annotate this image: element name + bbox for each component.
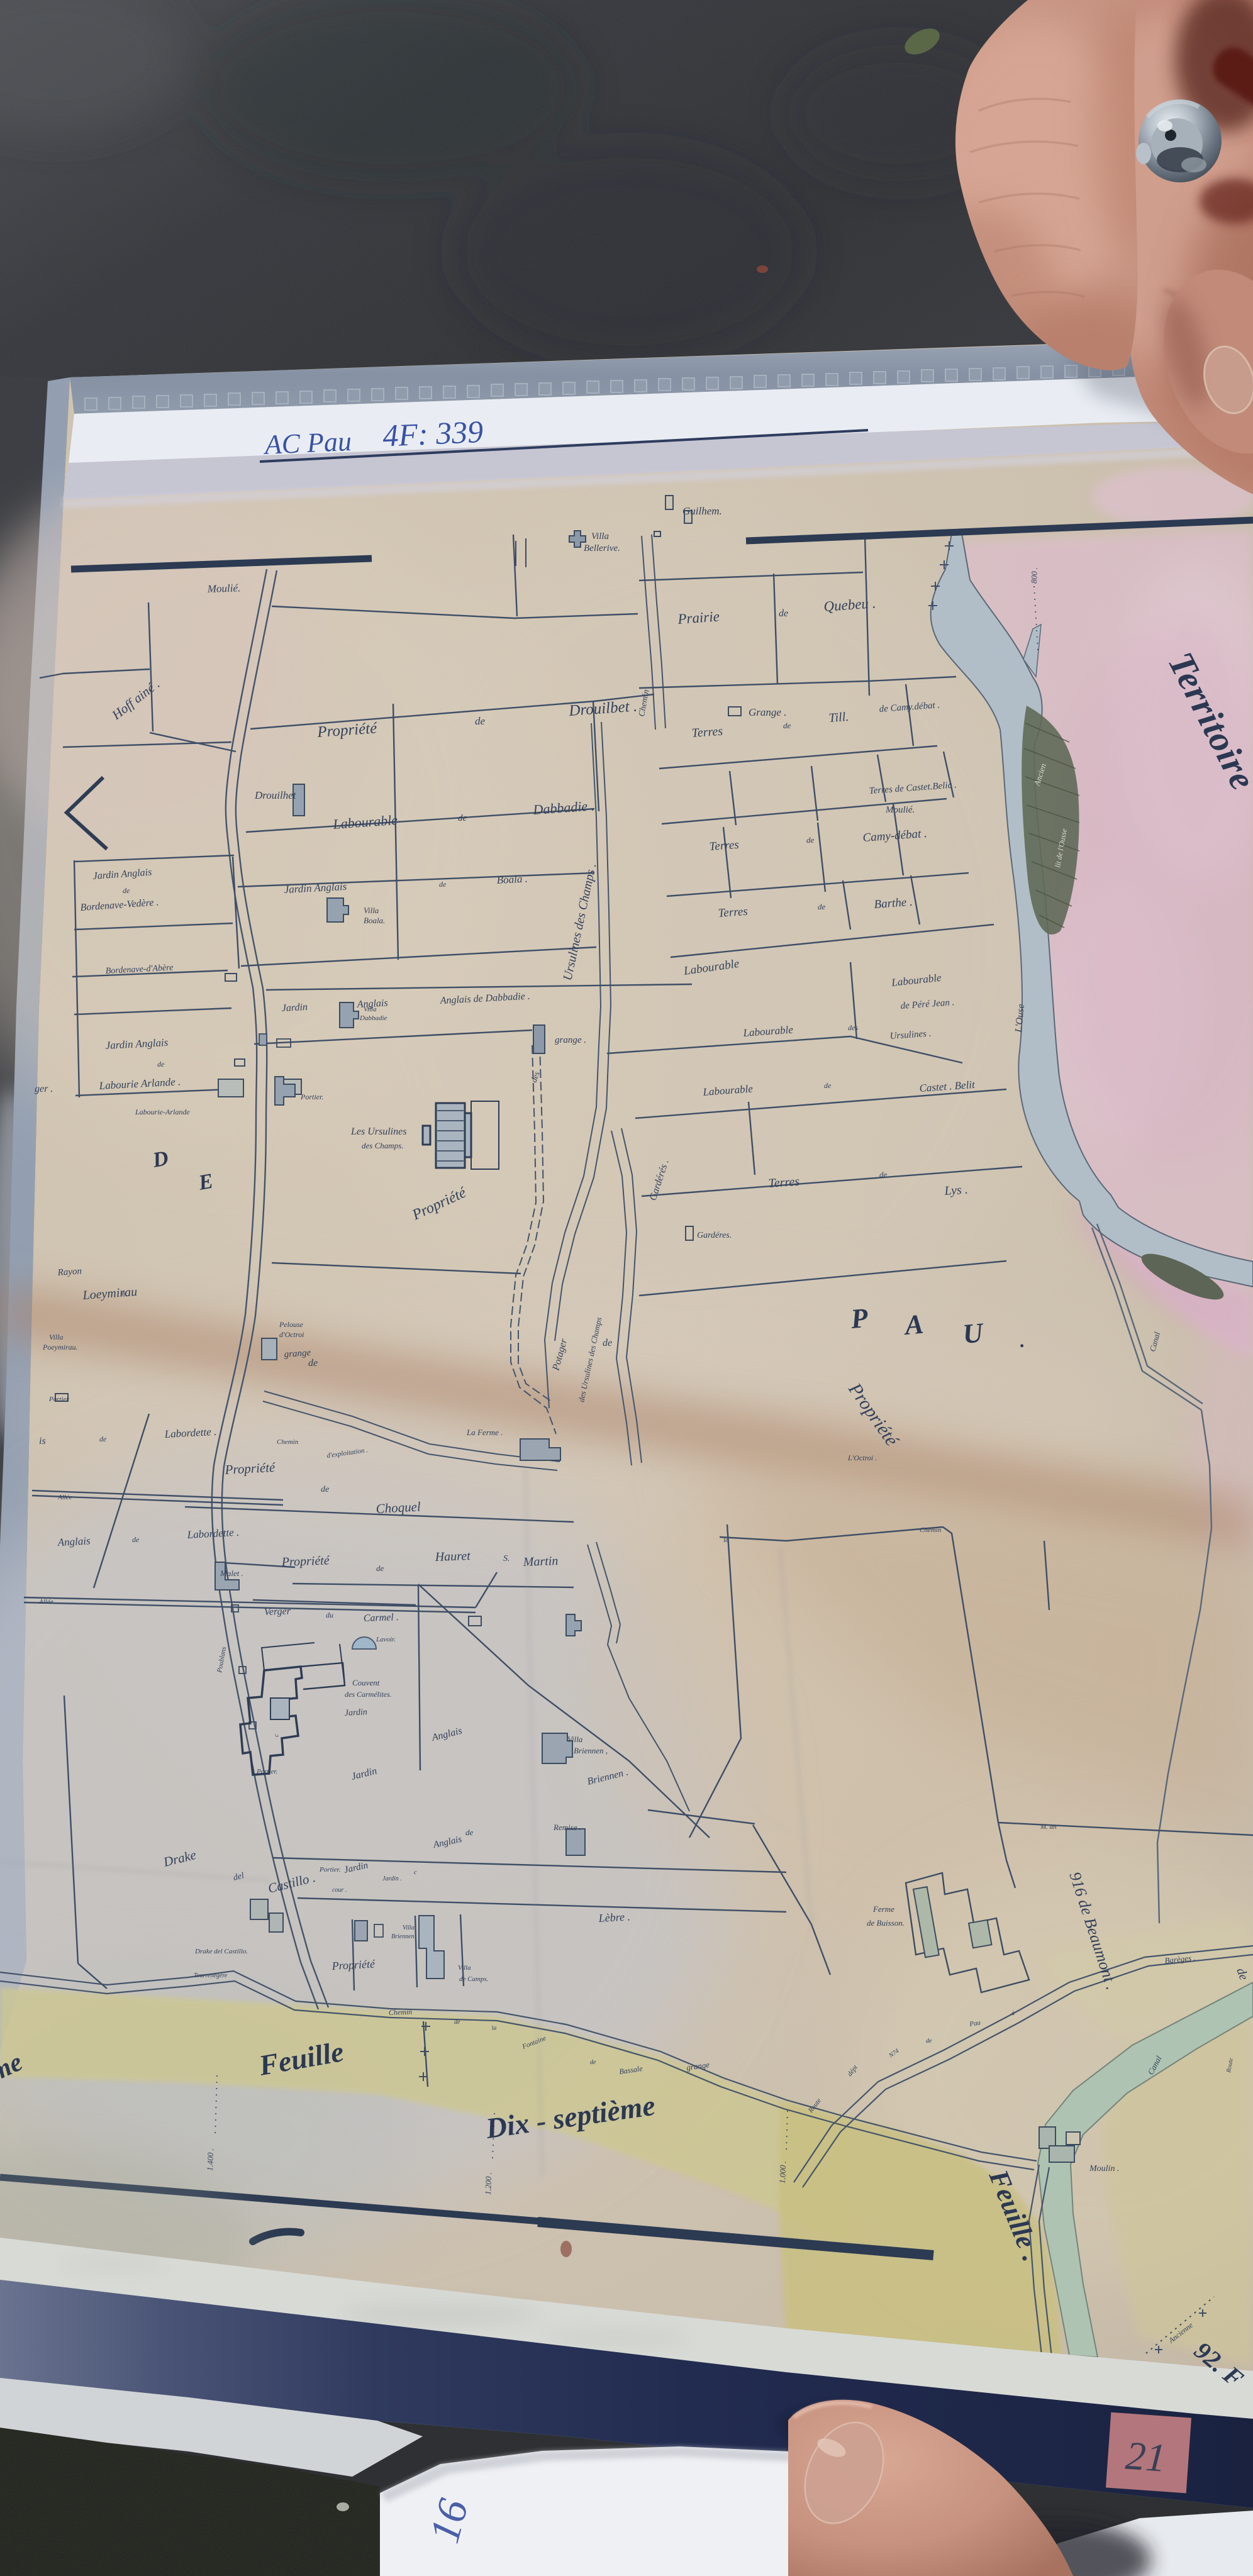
svg-text:de: de	[321, 1485, 329, 1494]
svg-text:Drouilhet: Drouilhet	[254, 789, 297, 801]
svg-text:Chemin: Chemin	[277, 1438, 299, 1446]
svg-text:de: de	[590, 2059, 596, 2066]
svg-text:des Carmélites.: des Carmélites.	[345, 1690, 392, 1699]
svg-text:Verger: Verger	[264, 1606, 291, 1618]
svg-text:Carmel .: Carmel .	[364, 1612, 399, 1624]
svg-text:Villa: Villa	[567, 1735, 583, 1744]
svg-text:de: de	[603, 1338, 612, 1348]
svg-text:Villa: Villa	[364, 1006, 377, 1013]
svg-text:de: de	[806, 835, 815, 845]
svg-text:Villa: Villa	[403, 1924, 415, 1931]
svg-text:Moulin .: Moulin .	[1089, 2164, 1119, 2173]
svg-text:La Ferme .: La Ferme .	[466, 1428, 503, 1437]
svg-text:c: c	[352, 1963, 356, 1972]
svg-text:de: de	[475, 715, 486, 727]
svg-text:Malet .: Malet .	[220, 1568, 243, 1578]
svg-text:Drake del Castillo.: Drake del Castillo.	[194, 1948, 248, 1955]
svg-text:.: .	[1020, 1331, 1025, 1352]
svg-text:Jardin: Jardin	[281, 1002, 308, 1014]
svg-text:de: de	[454, 2019, 460, 2026]
svg-text:Rayon: Rayon	[57, 1266, 82, 1278]
svg-text:Briennen ,: Briennen ,	[574, 1746, 608, 1755]
svg-text:de: de	[783, 721, 791, 730]
svg-text:de: de	[123, 886, 130, 895]
svg-text:de: de	[465, 1828, 474, 1837]
svg-text:Terres: Terres	[768, 1175, 800, 1191]
svg-text:4F: 339: 4F: 339	[382, 414, 484, 453]
svg-text:Villa: Villa	[364, 906, 379, 915]
svg-text:Chemin: Chemin	[920, 1526, 942, 1534]
svg-text:de Camps.: de Camps.	[459, 1975, 488, 1983]
svg-text:Propriété: Propriété	[281, 1553, 330, 1569]
svg-text:Remise .: Remise .	[553, 1823, 581, 1832]
svg-text:800 .: 800 .	[1029, 567, 1039, 584]
svg-text:Jardin: Jardin	[344, 1707, 367, 1718]
svg-text:Anglais: Anglais	[57, 1535, 91, 1548]
svg-text:Prairie: Prairie	[677, 608, 720, 627]
svg-text:21: 21	[1124, 2433, 1167, 2480]
svg-text:de: de	[132, 1535, 140, 1544]
svg-text:Tourrenégère: Tourrenégère	[194, 1972, 228, 1979]
svg-text:grange: grange	[284, 1348, 311, 1360]
svg-text:Terres: Terres	[718, 905, 749, 920]
svg-text:Portier.: Portier.	[300, 1092, 323, 1101]
svg-text:le: le	[723, 1536, 728, 1544]
svg-text:Boala .: Boala .	[496, 872, 528, 886]
svg-text:1.400 .: 1.400 .	[205, 2148, 215, 2171]
svg-text:Till.: Till.	[828, 710, 849, 725]
svg-text:des: des	[848, 1023, 858, 1032]
svg-text:c: c	[414, 1869, 417, 1876]
svg-text:1.200 .: 1.200 .	[483, 2172, 493, 2195]
svg-text:de: de	[376, 1563, 384, 1573]
svg-text:Les Ursulines: Les Ursulines	[350, 1126, 406, 1137]
svg-text:AC Pau: AC Pau	[262, 426, 352, 460]
svg-text:P: P	[849, 1302, 870, 1335]
svg-text:Bellerive.: Bellerive.	[584, 543, 620, 553]
svg-text:Barthe .: Barthe .	[874, 896, 913, 911]
svg-text:à: à	[1011, 2010, 1015, 2017]
svg-text:L'Octroi .: L'Octroi .	[847, 1453, 877, 1462]
svg-text:Moulié.: Moulié.	[206, 582, 240, 595]
svg-text:S.: S.	[503, 1554, 510, 1563]
svg-text:de: de	[308, 1358, 318, 1368]
svg-text:Portier: Portier	[48, 1396, 69, 1403]
svg-text:grange .: grange .	[555, 1035, 586, 1045]
svg-text:de: de	[458, 813, 467, 823]
svg-text:Guilhem.: Guilhem.	[682, 505, 722, 517]
svg-text:Villa: Villa	[49, 1333, 63, 1341]
svg-text:M. an: M. an	[1040, 1823, 1057, 1831]
svg-text:Lèbre .: Lèbre .	[598, 1910, 630, 1924]
svg-text:Chemin: Chemin	[389, 2007, 413, 2017]
svg-text:Ferme: Ferme	[872, 1904, 894, 1914]
svg-text:Terres: Terres	[709, 838, 740, 853]
svg-text:Choquel: Choquel	[376, 1499, 421, 1516]
svg-text:Villa: Villa	[591, 531, 609, 541]
svg-text:Poeymirau.: Poeymirau.	[42, 1343, 78, 1352]
svg-text:Couvent: Couvent	[352, 1678, 380, 1687]
svg-text:Allée: Allée	[57, 1494, 72, 1501]
svg-text:1.000 .: 1.000 .	[777, 2161, 788, 2184]
svg-text:de Buisson.: de Buisson.	[867, 1918, 905, 1928]
svg-text:de: de	[779, 608, 788, 619]
svg-text:Allée: Allée	[38, 1598, 53, 1606]
svg-text:des Champs.: des Champs.	[362, 1141, 403, 1150]
svg-text:de: de	[439, 880, 447, 889]
svg-text:Portier.: Portier.	[256, 1768, 277, 1775]
svg-text:Portier.: Portier.	[319, 1866, 340, 1874]
svg-text:du: du	[326, 1611, 333, 1619]
svg-text:cour .: cour .	[332, 1887, 347, 1894]
svg-text:Villa: Villa	[458, 1964, 471, 1972]
svg-text:Lavoir.: Lavoir.	[376, 1636, 396, 1643]
svg-text:Jardin .: Jardin .	[382, 1875, 402, 1882]
svg-text:Labourie-Arlande: Labourie-Arlande	[135, 1108, 190, 1116]
svg-text:de: de	[99, 1435, 107, 1443]
svg-text:de: de	[926, 2038, 932, 2045]
svg-text:la: la	[491, 2024, 497, 2032]
svg-text:Moulié.: Moulié.	[885, 805, 915, 815]
svg-text:Hauret: Hauret	[434, 1549, 471, 1564]
svg-text:ger .: ger .	[35, 1084, 53, 1094]
svg-text:Lys .: Lys .	[944, 1182, 969, 1198]
svg-text:Briennen: Briennen	[391, 1933, 415, 1940]
svg-text:Terres: Terres	[691, 724, 723, 740]
svg-text:is: is	[39, 1436, 46, 1446]
svg-text:Boala.: Boala.	[364, 916, 385, 925]
svg-text:Propriété: Propriété	[224, 1460, 277, 1477]
svg-text:de: de	[879, 1170, 888, 1179]
svg-text:de: de	[818, 902, 826, 911]
svg-text:Grange .: Grange .	[749, 706, 786, 718]
svg-text:Dabbadie: Dabbadie	[359, 1014, 387, 1022]
svg-text:Gardéres.: Gardéres.	[697, 1231, 732, 1240]
svg-text:d'Octroi: d'Octroi	[279, 1330, 304, 1339]
svg-text:Pelouse: Pelouse	[279, 1320, 304, 1329]
svg-text:de: de	[824, 1081, 832, 1090]
svg-text:de: de	[157, 1060, 165, 1069]
